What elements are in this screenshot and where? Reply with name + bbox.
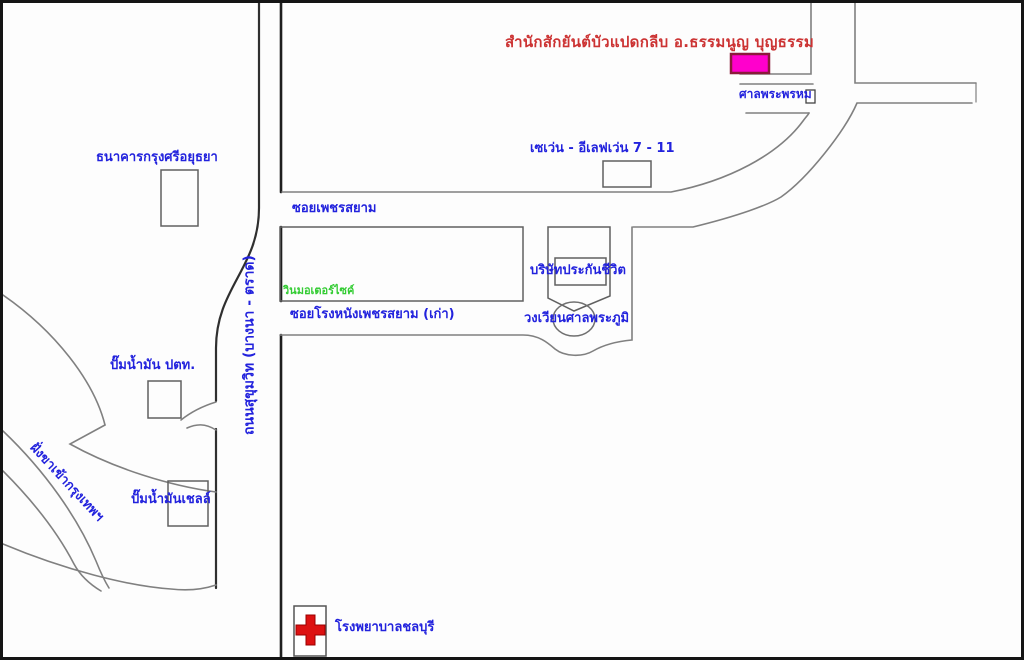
bank-building <box>161 170 198 226</box>
hospital-label: โรงพยาบาลชลบุรี <box>335 621 434 635</box>
road-ramp-outer-arc <box>3 295 105 425</box>
seven-eleven-building <box>603 161 651 187</box>
motorcycle-taxi-label: วินมอเตอร์ไซค์ <box>283 285 354 297</box>
seven-eleven-label: เซเว่น - อีเลฟเว่น 7 - 11 <box>530 142 675 156</box>
road-ramp-bottom <box>3 544 216 590</box>
brahma-shrine-label: ศาลพระพรหม <box>739 88 812 101</box>
ptt-building <box>148 381 181 418</box>
map-title: สำนักสักยันต์บัวแปดกลีบ อ.ธรรมนูญ บุญธรร… <box>505 34 814 51</box>
ptt-station-label: ปั๊มน้ำมัน ปตท. <box>110 359 195 373</box>
road-topright-L <box>855 3 976 83</box>
roundabout-label: วงเวียนศาลพระภูมิ <box>524 312 629 326</box>
insurance-label: บริษัทประกันชีวิต <box>530 264 626 278</box>
road-ptt-soi-lower <box>187 425 216 430</box>
soi-phetsiam-label: ซอยเพชรสยาม <box>292 202 377 216</box>
shell-station-label: ปั๊มน้ำมันเชลล์ <box>131 493 211 507</box>
road-ramp-fork <box>70 425 216 492</box>
office-marker <box>731 54 769 73</box>
map-canvas: สำนักสักยันต์บัวแปดกลีบ อ.ธรรมนูญ บุญธรร… <box>0 0 1024 660</box>
map-drawing <box>3 3 1024 660</box>
sukhumvit-road-label: ถนนสุขุมวิท (บางนา - ตราด) <box>242 255 257 435</box>
road-ptt-soi-upper <box>181 402 216 420</box>
bank-label: ธนาคารกรุงศรีอยุธยา <box>96 151 218 165</box>
soi-oldcinema-label: ซอยโรงหนังเพชรสยาม (เก่า) <box>290 308 455 322</box>
road-network <box>3 3 976 660</box>
